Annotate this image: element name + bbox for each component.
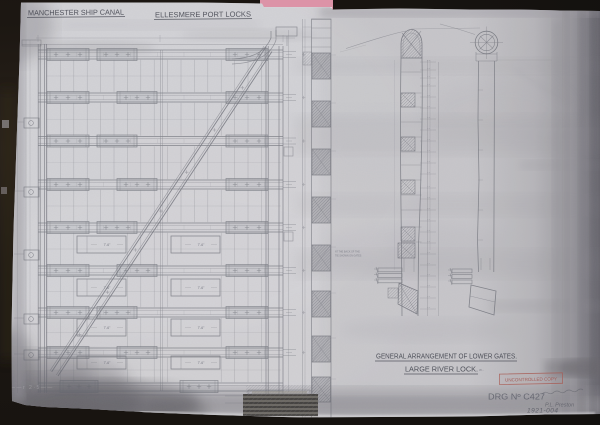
svg-text:7'-6": 7'-6" <box>198 326 206 330</box>
svg-text:7'-6": 7'-6" <box>198 361 206 365</box>
svg-text:DRG Nº C427: DRG Nº C427 <box>488 393 545 402</box>
svg-text:7'-6": 7'-6" <box>198 243 206 247</box>
svg-text:LARGE RIVER LOCK.: LARGE RIVER LOCK. <box>405 367 478 374</box>
svg-text:7'-6": 7'-6" <box>104 361 112 365</box>
svg-text:w..: w.. <box>479 367 484 372</box>
svg-text:MANCHESTER SHIP CANAL: MANCHESTER SHIP CANAL <box>28 8 124 18</box>
svg-text:7'-6": 7'-6" <box>198 286 206 290</box>
svg-text:1921-004: 1921-004 <box>527 408 558 415</box>
svg-text:AT THE BACK OF THE: AT THE BACK OF THE <box>335 251 360 254</box>
svg-text:TIE SHOWN ON GATES: TIE SHOWN ON GATES <box>335 255 362 258</box>
svg-text:ELLESMERE PORT LOCKS: ELLESMERE PORT LOCKS <box>155 10 251 20</box>
svg-text:——r 2·5——: ——r 2·5—— <box>10 385 54 391</box>
svg-text:7'-6": 7'-6" <box>104 243 112 247</box>
svg-text:7'-6": 7'-6" <box>104 326 112 330</box>
svg-text:7'-6": 7'-6" <box>104 286 112 290</box>
svg-text:GENERAL ARRANGEMENT OF LOWER G: GENERAL ARRANGEMENT OF LOWER GATES. <box>376 354 517 361</box>
